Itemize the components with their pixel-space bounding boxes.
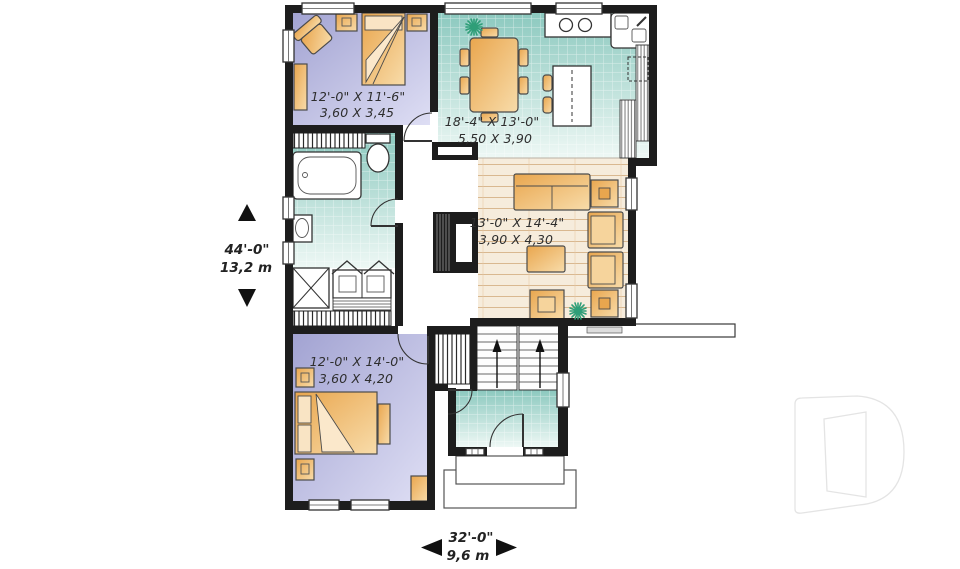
nightstand: [336, 14, 357, 31]
arrow-left-icon: [421, 539, 442, 556]
nightstand: [296, 459, 314, 480]
kitchen-dining-dimensions-metric: 5,50 X 3,90: [458, 131, 532, 146]
plant-icon: [570, 303, 586, 319]
dining-chair: [519, 49, 528, 66]
window: [557, 373, 569, 407]
burner: [579, 19, 592, 32]
arrow-down-icon: [238, 289, 256, 307]
island-stool: [543, 97, 552, 113]
nightstand: [296, 368, 314, 387]
kitchen-counter: [620, 100, 636, 158]
bedroom-1-dimensions-imperial: 12'-0" X 11'-6": [311, 89, 406, 104]
louvered-cabinet: [333, 298, 391, 310]
living-room-dimensions-metric: 3,90 X 4,30: [479, 232, 553, 247]
window: [626, 284, 637, 318]
bedroom-1-closet: [293, 133, 365, 148]
arrow-up-icon: [238, 204, 256, 221]
staircase: [477, 326, 560, 390]
entry-tile-grid: [456, 390, 560, 447]
pillow: [298, 396, 311, 423]
entry-closet: [435, 334, 470, 384]
dining-chair: [519, 77, 528, 94]
door-sidelight: [466, 449, 484, 456]
floor-plan-page: 12'-0" X 11'-6" 3,60 X 3,45 18'-4" X 13'…: [0, 0, 960, 569]
dining-chair: [460, 77, 469, 94]
dining-chair: [460, 49, 469, 66]
nightstand: [407, 14, 427, 31]
window: [626, 178, 637, 210]
window: [283, 197, 294, 219]
bedroom-1-dimensions-metric: 3,60 X 3,45: [320, 105, 394, 120]
pillow: [298, 425, 311, 452]
dresser: [411, 476, 429, 501]
pony-wall-inset: [438, 147, 472, 155]
dining-chair: [481, 28, 498, 37]
deck-step: [587, 327, 622, 333]
door-sidelight: [525, 449, 543, 456]
toilet-bowl: [367, 144, 389, 172]
bedroom-2-dimensions-metric: 3,60 X 4,20: [319, 371, 393, 386]
plant-icon: [466, 19, 482, 35]
toilet-tank: [366, 134, 390, 143]
kitchen-island: [553, 66, 591, 126]
width-imperial: 32'-0": [449, 530, 494, 546]
bedroom-2-closet: [293, 311, 391, 326]
arrow-right-icon: [496, 539, 517, 556]
kitchen-counter: [636, 45, 649, 141]
width-metric: 9,6 m: [447, 548, 490, 564]
bed-bench: [378, 404, 390, 444]
window: [283, 242, 294, 264]
d-logo-watermark: [795, 396, 904, 513]
dining-table: [470, 38, 518, 112]
window: [309, 500, 339, 510]
window: [556, 3, 602, 14]
burner: [560, 19, 573, 32]
width-dimension: 32'-0" 9,6 m: [421, 530, 517, 564]
dresser: [294, 64, 307, 110]
window: [351, 500, 389, 510]
island-stool: [543, 75, 552, 91]
coffee-table: [527, 246, 565, 272]
depth-metric: 13,2 m: [220, 260, 272, 276]
bedroom-2-dimensions-imperial: 12'-0" X 14'-0": [310, 354, 405, 369]
porch-upper-step: [456, 456, 564, 484]
depth-dimension: 44'-0" 13,2 m: [220, 204, 272, 307]
kitchen-dining-dimensions-imperial: 18'-4" X 13'-0": [445, 114, 540, 129]
window: [445, 3, 531, 14]
window: [283, 30, 294, 62]
window: [302, 3, 354, 14]
living-room-dimensions-imperial: 13'-0" X 14'-4": [470, 215, 565, 230]
floor-plan-svg: 12'-0" X 11'-6" 3,60 X 3,45 18'-4" X 13'…: [0, 0, 960, 569]
depth-imperial: 44'-0": [224, 242, 270, 258]
